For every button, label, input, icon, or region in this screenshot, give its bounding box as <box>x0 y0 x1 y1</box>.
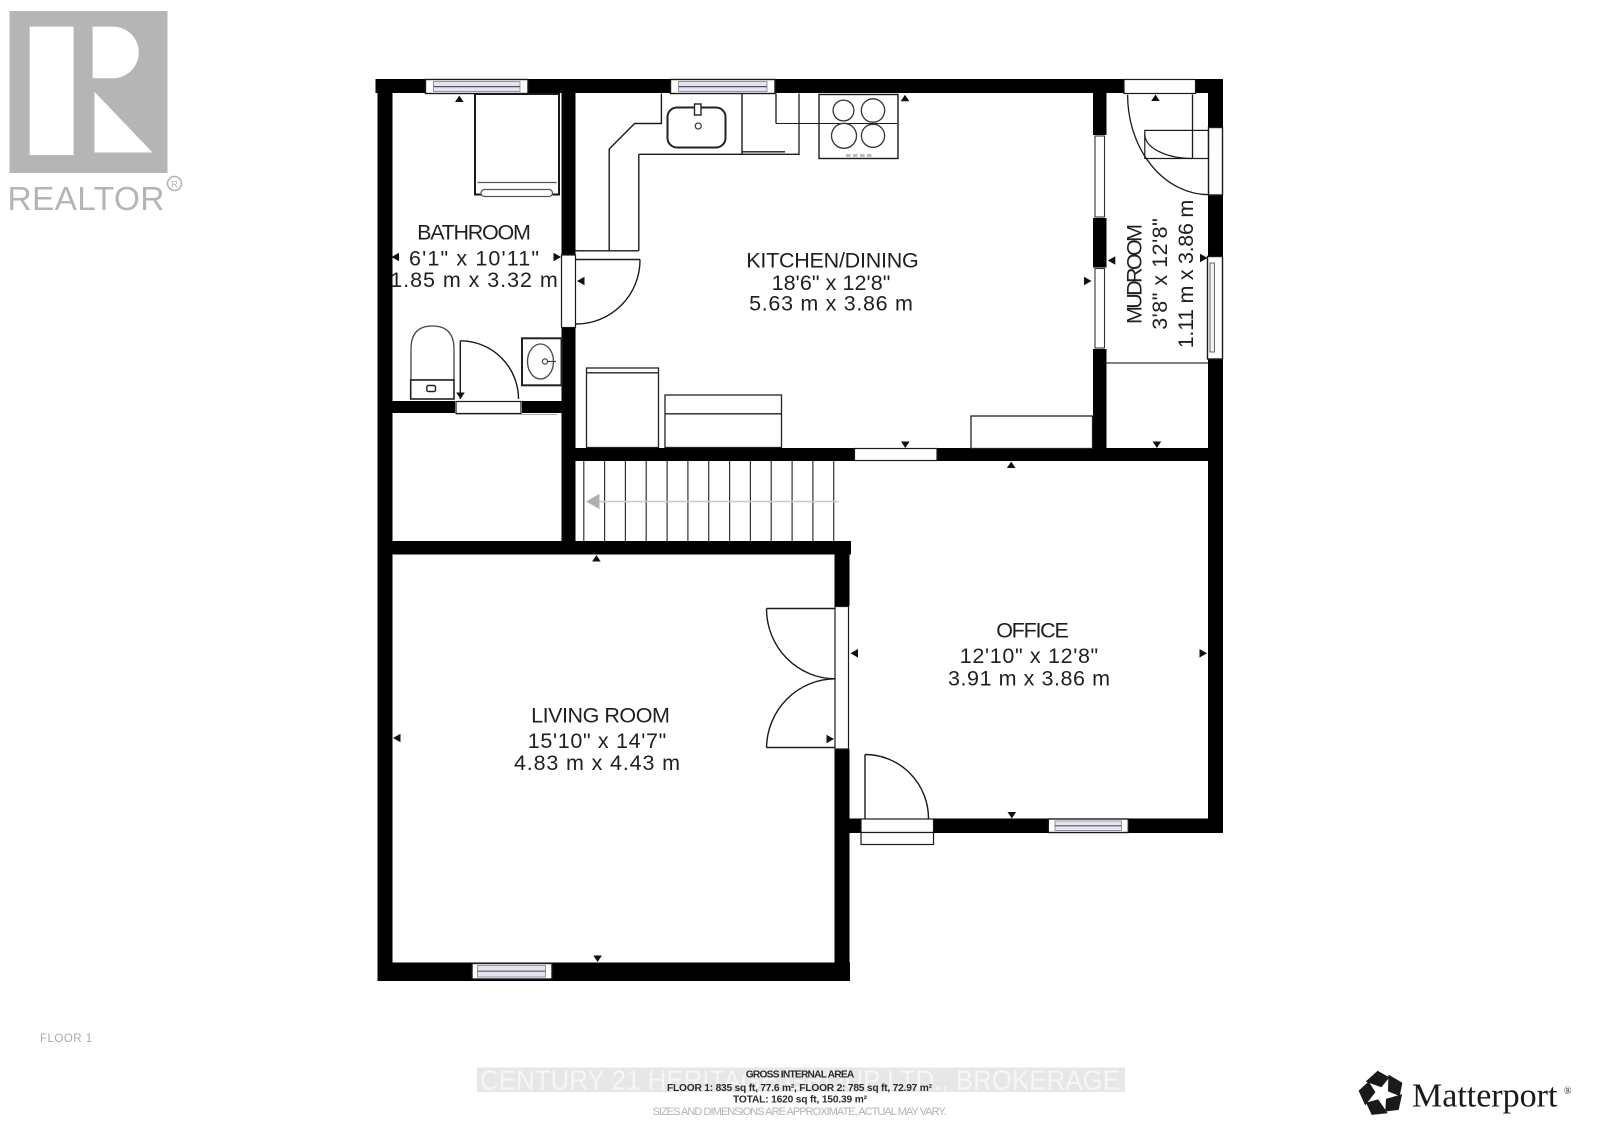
svg-text:OFFICE: OFFICE <box>996 619 1069 643</box>
svg-text:12'10" x 12'8": 12'10" x 12'8" <box>960 644 1098 668</box>
svg-text:GROSS INTERNAL AREA: GROSS INTERNAL AREA <box>746 1069 855 1080</box>
svg-text:LIVING ROOM: LIVING ROOM <box>531 704 670 728</box>
svg-text:FLOOR 1: 835 sq ft, 77.6 m², F: FLOOR 1: 835 sq ft, 77.6 m², FLOOR 2: 78… <box>667 1083 933 1094</box>
svg-text:TOTAL: 1620 sq ft, 150.39 m²: TOTAL: 1620 sq ft, 150.39 m² <box>733 1095 868 1106</box>
svg-text:4.83 m x 4.43 m: 4.83 m x 4.43 m <box>514 751 680 775</box>
svg-text:MUDROOM: MUDROOM <box>1122 224 1146 324</box>
svg-text:REALTOR: REALTOR <box>8 181 165 218</box>
svg-text:BATHROOM: BATHROOM <box>417 221 531 245</box>
svg-text:1.85 m x 3.32 m: 1.85 m x 3.32 m <box>390 268 558 292</box>
svg-text:6'1" x 10'11": 6'1" x 10'11" <box>409 247 539 271</box>
svg-text:KITCHEN/DINING: KITCHEN/DINING <box>746 248 919 272</box>
svg-text:3'8" x 12'8": 3'8" x 12'8" <box>1148 218 1172 330</box>
svg-text:1.11 m x 3.86 m: 1.11 m x 3.86 m <box>1174 200 1198 349</box>
svg-text:Matterport: Matterport <box>1412 1078 1558 1115</box>
svg-text:SIZES AND DIMENSIONS ARE APPRO: SIZES AND DIMENSIONS ARE APPROXIMATE, AC… <box>653 1106 947 1118</box>
svg-text:3.91 m x 3.86 m: 3.91 m x 3.86 m <box>948 667 1110 691</box>
svg-text:5.63 m x 3.86 m: 5.63 m x 3.86 m <box>749 292 913 316</box>
svg-text:R: R <box>171 180 178 191</box>
svg-text:FLOOR 1: FLOOR 1 <box>40 1033 93 1045</box>
svg-text:15'10" x 14'7": 15'10" x 14'7" <box>528 729 667 753</box>
svg-text:®: ® <box>1564 1086 1572 1097</box>
